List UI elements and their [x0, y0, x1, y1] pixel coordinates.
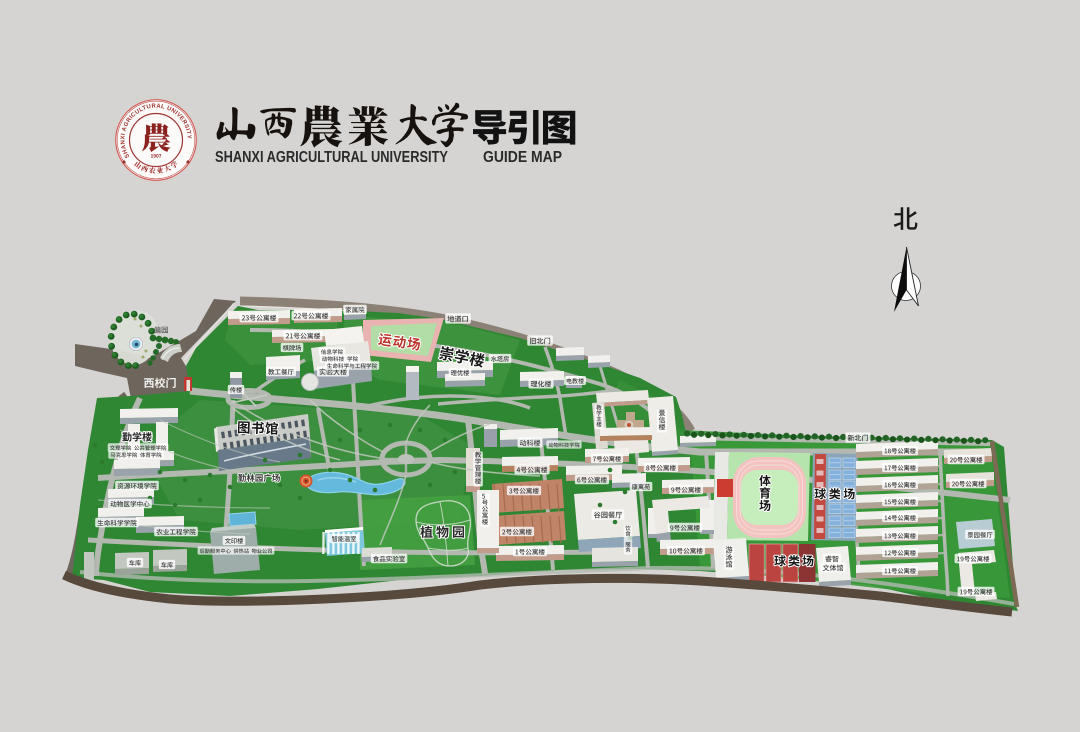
svg-text:SHANXI AGRICULTURAL UNIVERSITY: SHANXI AGRICULTURAL UNIVERSITY [215, 149, 449, 166]
svg-text:GUIDE MAP: GUIDE MAP [483, 149, 562, 166]
